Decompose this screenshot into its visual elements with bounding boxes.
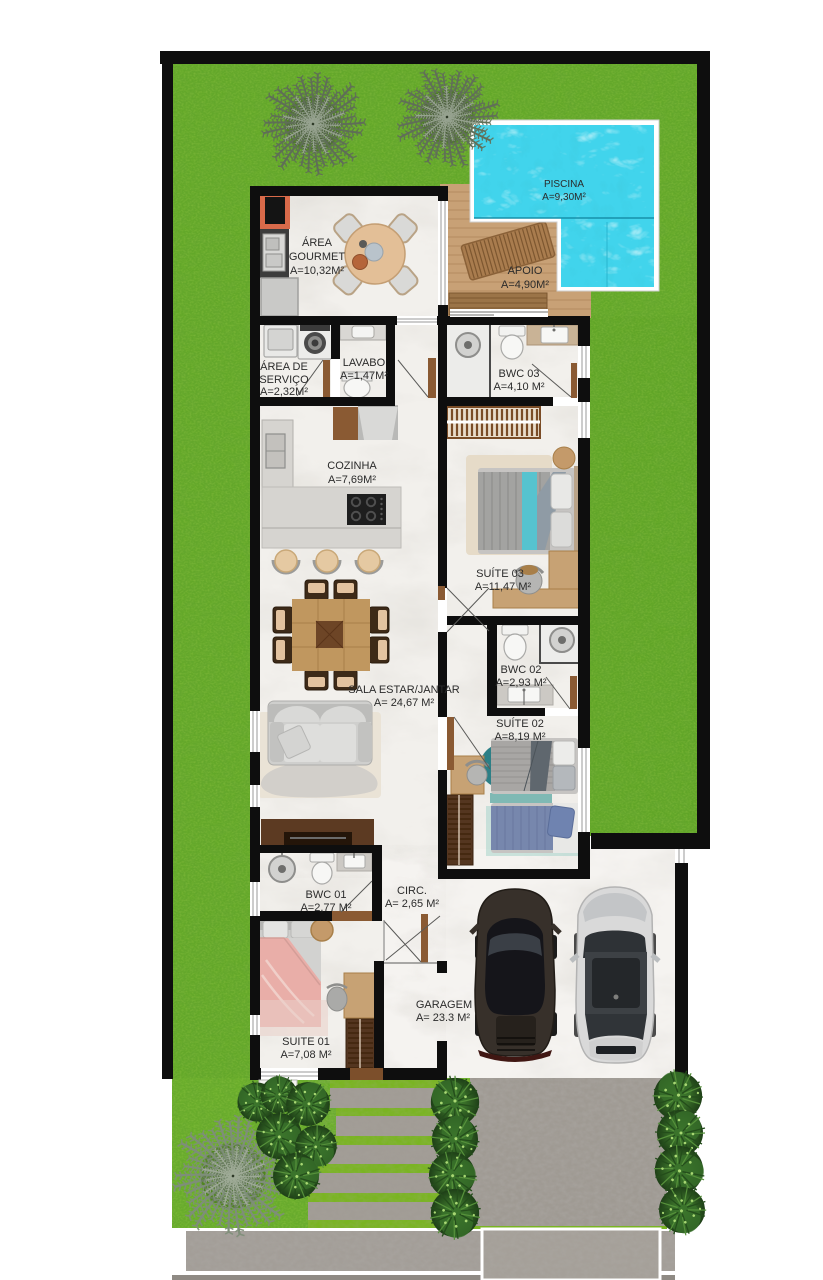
svg-text:A=7,08 M²: A=7,08 M² — [280, 1049, 331, 1061]
svg-text:GOURMET: GOURMET — [289, 251, 346, 263]
svg-text:SUÍTE 02: SUÍTE 02 — [496, 717, 544, 730]
svg-text:A=10,32M²: A=10,32M² — [290, 265, 344, 277]
svg-text:A= 24,67 M²: A= 24,67 M² — [374, 697, 435, 709]
svg-text:SALA ESTAR/JANTAR: SALA ESTAR/JANTAR — [348, 684, 460, 696]
svg-text:COZINHA: COZINHA — [327, 460, 377, 472]
svg-text:GARAGEM: GARAGEM — [416, 999, 472, 1011]
svg-text:ÁREA DE: ÁREA DE — [260, 360, 308, 373]
svg-text:A=11,47 M²: A=11,47 M² — [475, 581, 532, 593]
svg-text:A=7,69M²: A=7,69M² — [328, 474, 376, 486]
svg-text:A=1,47M²: A=1,47M² — [340, 370, 388, 382]
svg-text:LAVABO: LAVABO — [343, 357, 386, 369]
svg-text:A=8,19 M²: A=8,19 M² — [494, 731, 545, 743]
svg-text:A=2,93 M²: A=2,93 M² — [495, 677, 546, 689]
svg-text:BWC 03: BWC 03 — [499, 368, 540, 380]
svg-text:APOIO: APOIO — [508, 265, 543, 277]
svg-text:A=2,77 M²: A=2,77 M² — [300, 902, 351, 914]
svg-text:A=2,32M²: A=2,32M² — [260, 386, 308, 398]
svg-text:A=9,30M²: A=9,30M² — [542, 192, 586, 203]
svg-text:SUITE 01: SUITE 01 — [282, 1036, 330, 1048]
svg-text:BWC 02: BWC 02 — [501, 664, 542, 676]
svg-text:A= 2,65 M²: A= 2,65 M² — [385, 898, 439, 910]
svg-text:A=4,10 M²: A=4,10 M² — [493, 381, 544, 393]
svg-text:CIRC.: CIRC. — [397, 885, 427, 897]
svg-text:BWC 01: BWC 01 — [306, 889, 347, 901]
svg-text:ÁREA: ÁREA — [302, 236, 333, 249]
svg-text:SERVIÇO: SERVIÇO — [259, 374, 309, 386]
svg-text:A=4,90M²: A=4,90M² — [501, 279, 549, 291]
svg-text:A= 23.3 M²: A= 23.3 M² — [416, 1012, 470, 1024]
svg-text:SUÍTE 03: SUÍTE 03 — [476, 567, 524, 580]
svg-text:PISCINA: PISCINA — [544, 179, 584, 190]
